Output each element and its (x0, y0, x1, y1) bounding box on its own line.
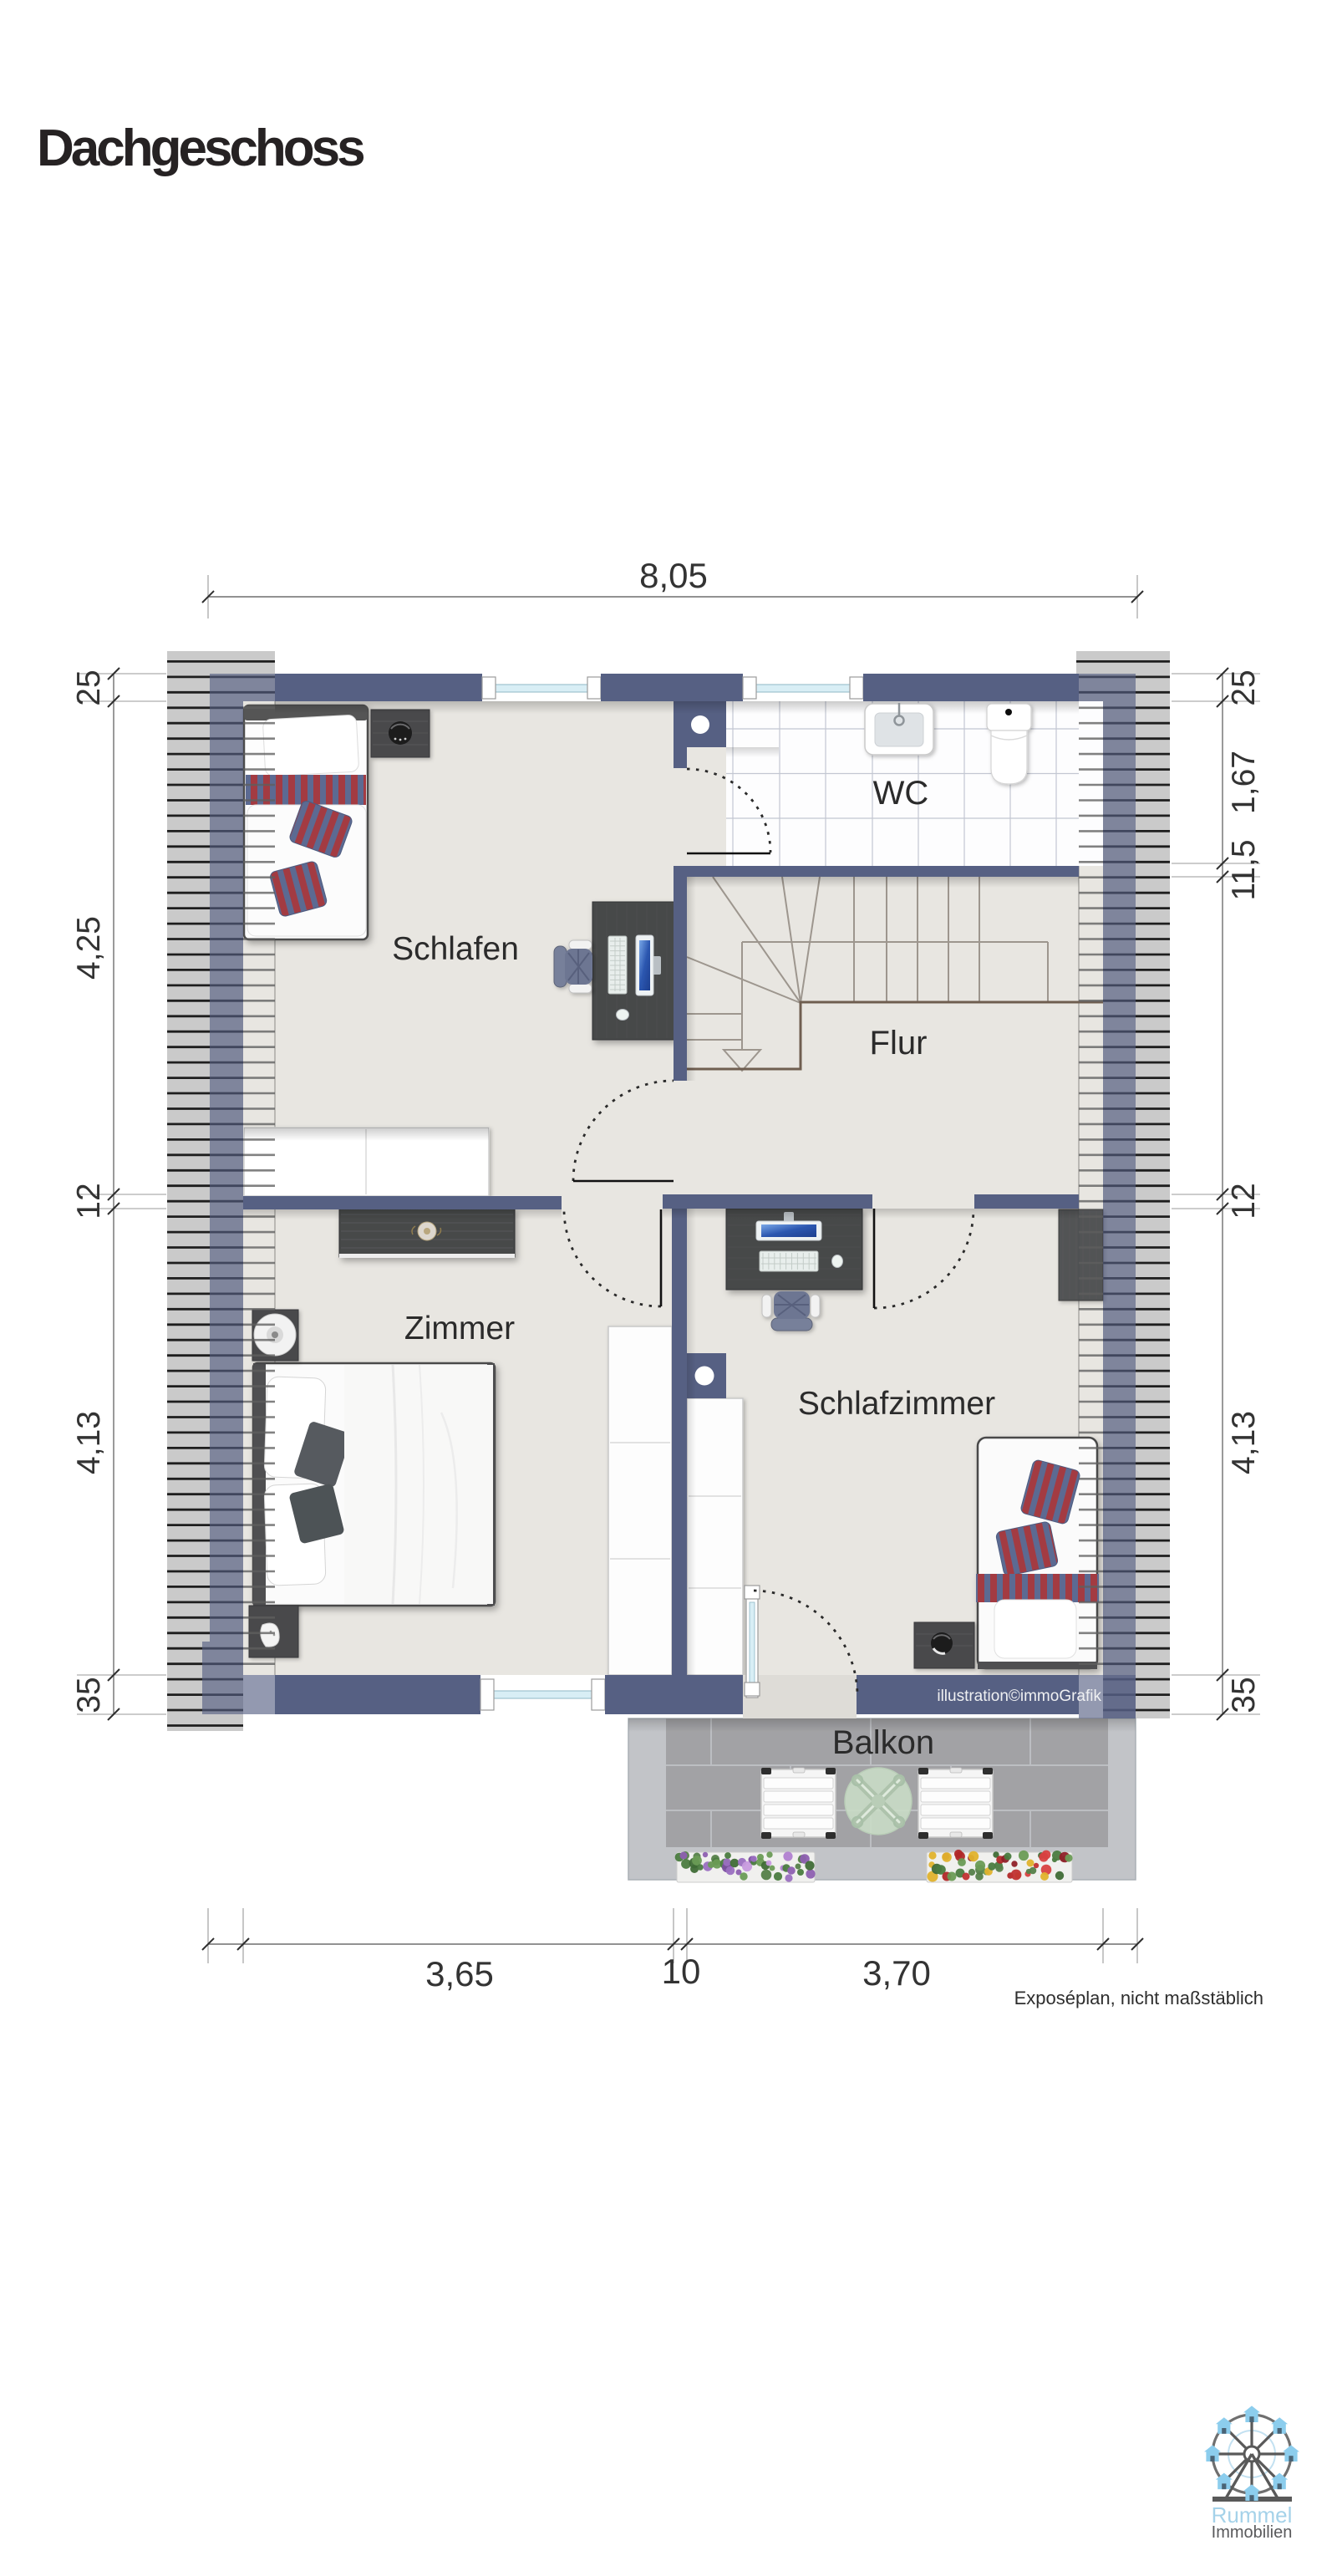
svg-text:Flur: Flur (870, 1025, 928, 1061)
svg-text:WC: WC (873, 775, 929, 812)
svg-text:11,5: 11,5 (1226, 839, 1262, 900)
svg-text:25: 25 (71, 669, 107, 705)
svg-text:4,13: 4,13 (1226, 1411, 1262, 1474)
svg-text:Exposéplan, nicht maßstäblich: Exposéplan, nicht maßstäblich (1014, 1988, 1263, 2008)
svg-text:Immobilien: Immobilien (1212, 2523, 1293, 2542)
svg-text:12: 12 (1226, 1183, 1262, 1219)
svg-text:12: 12 (71, 1183, 107, 1219)
svg-text:illustration©immoGrafik: illustration©immoGrafik (937, 1688, 1101, 1705)
svg-text:Balkon: Balkon (832, 1724, 934, 1761)
svg-text:25: 25 (1226, 669, 1262, 705)
svg-text:Schlafzimmer: Schlafzimmer (798, 1386, 995, 1422)
svg-text:4,13: 4,13 (71, 1411, 107, 1474)
svg-text:4,25: 4,25 (71, 916, 107, 980)
svg-text:Schlafen: Schlafen (392, 931, 519, 967)
svg-text:3,70: 3,70 (862, 1953, 931, 1993)
svg-text:1,67: 1,67 (1226, 751, 1262, 814)
svg-text:Zimmer: Zimmer (404, 1311, 515, 1347)
svg-text:35: 35 (71, 1677, 107, 1713)
svg-text:3,65: 3,65 (425, 1954, 494, 1993)
svg-text:35: 35 (1226, 1677, 1262, 1713)
svg-text:Dachgeschoss: Dachgeschoss (37, 120, 363, 177)
svg-text:8,05: 8,05 (639, 556, 708, 595)
svg-text:10: 10 (662, 1952, 701, 1991)
